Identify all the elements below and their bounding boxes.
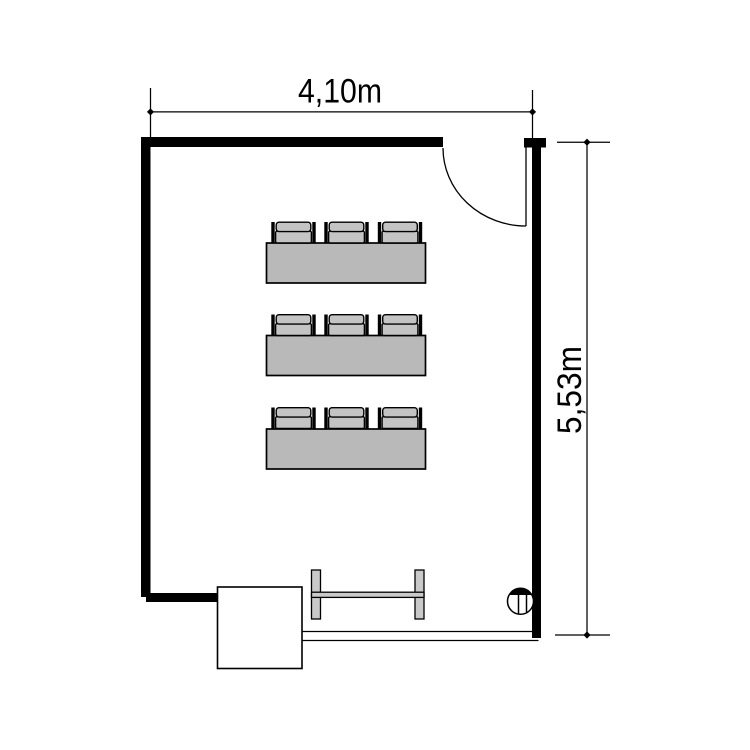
svg-text:5,53m: 5,53m: [551, 346, 589, 434]
svg-text:4,10m: 4,10m: [298, 73, 382, 111]
